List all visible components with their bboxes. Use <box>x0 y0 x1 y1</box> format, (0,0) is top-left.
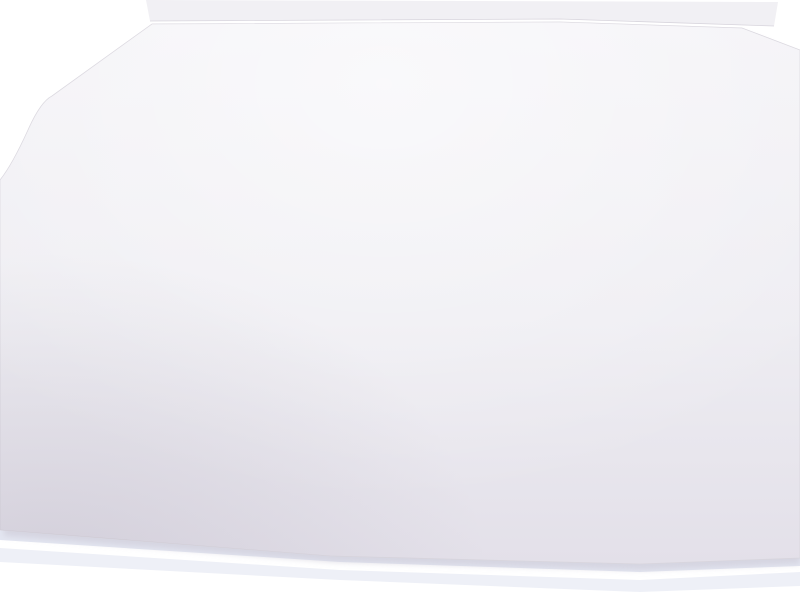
printed-content <box>0 0 800 600</box>
plan-sheet-scene <box>0 0 800 600</box>
photo-of-model-ship-plan-sheets <box>0 0 800 600</box>
lighting-overlay <box>0 0 800 600</box>
